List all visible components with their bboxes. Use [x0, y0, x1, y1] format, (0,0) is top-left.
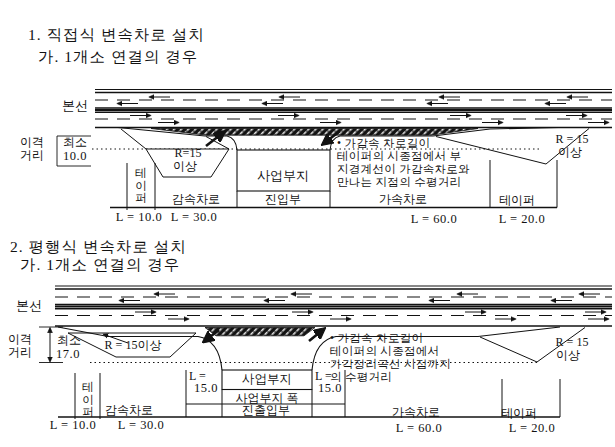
d2-mainline-label: 본선	[16, 299, 42, 313]
d2-radius-left: R = 15이상	[105, 339, 162, 352]
section2-title: 2. 평행식 변속차로 설치	[10, 239, 187, 256]
d1-dim-taper-left: L = 10.0	[116, 211, 162, 225]
d1-radius-left-2: 이상	[173, 160, 197, 173]
d2-dim-taper-left: L = 10.0	[50, 419, 96, 433]
d2-segment-accel: 가속차로	[392, 406, 440, 419]
d1-site-label: 사업부지	[257, 169, 309, 183]
d2-note-3: 가각정리곡선 시점까지	[330, 358, 451, 370]
d1-dim-accel: L = 60.0	[411, 213, 457, 227]
d1-note-2: 테이퍼의 시종점에서 부	[337, 150, 461, 162]
d1-note-3: 지경계선이 가감속차로와	[337, 163, 470, 175]
d2-dim-side-left-2: 15.0	[194, 382, 218, 396]
d1-note-4: 만나는 지점의 수평거리	[337, 176, 461, 188]
section1-subtitle: 가. 1개소 연결의 경우	[38, 49, 198, 66]
d1-radius-right-1: R = 15	[556, 133, 589, 146]
d1-offset-value: 10.0	[63, 150, 87, 164]
d2-dim-decel: L = 30.0	[118, 419, 164, 433]
d1-radius-left-1: R=15	[175, 147, 202, 160]
d2-site-label: 사업부지	[242, 373, 292, 387]
d2-offset-min: 최소	[57, 334, 81, 347]
d2-dim-taper-right: L = 20.0	[509, 422, 555, 436]
d1-segment-taper-right: 테이퍼	[499, 194, 535, 207]
d1-segment-accel: 가속차로	[379, 193, 427, 206]
d1-dim-decel: L = 30.0	[171, 211, 217, 225]
d1-note-1: • 가감속 차로길이	[337, 137, 430, 149]
d1-offset-min: 최소	[63, 136, 87, 149]
d1-offset-label-1: 이격	[20, 136, 44, 149]
speed-change-lane-hatch	[205, 328, 315, 336]
d1-segment-taper-left: 테이퍼	[134, 167, 148, 205]
d2-note-1: • 가감속 차로길이	[330, 332, 423, 344]
d2-offset-label-2: 거리	[8, 346, 32, 359]
section2-subtitle: 가. 1개소 연결의 경우	[20, 257, 180, 274]
d2-radius-right-1: R = 15	[556, 336, 589, 349]
d2-segment-taper-left: 테이퍼	[81, 381, 95, 419]
d2-segment-decel: 감속차로	[105, 404, 153, 417]
mainline-road	[55, 286, 612, 326]
speed-change-lane-hatch	[151, 129, 478, 136]
d2-segment-taper-right: 테이퍼	[501, 407, 537, 420]
d2-radius-right-2: 이상	[556, 349, 580, 362]
d2-note-2: 테이퍼의 시종점에서	[330, 345, 439, 357]
d2-offset-value: 17.0	[56, 348, 80, 362]
d1-mainline-label: 본선	[62, 99, 88, 113]
d2-dim-accel: L = 60.0	[396, 422, 442, 436]
d1-segment-entry: 진입부	[265, 193, 301, 206]
d2-offset-label-1: 이격	[8, 333, 32, 346]
d1-radius-right-2: 이상	[558, 146, 582, 159]
d2-entry-exit-label: 진출입부	[242, 404, 290, 417]
d1-segment-decel: 감속차로	[172, 193, 220, 206]
d2-dim-side-right-2: 15.0	[318, 382, 342, 396]
section1-title: 1. 직접식 변속차로 설치	[28, 27, 205, 44]
mainline-road	[95, 90, 612, 128]
d1-dim-taper-right: L = 20.0	[499, 213, 545, 227]
d1-offset-label-2: 거리	[20, 149, 44, 162]
document-page: 1. 직접식 변속차로 설치 가. 1개소 연결의 경우	[0, 0, 615, 447]
